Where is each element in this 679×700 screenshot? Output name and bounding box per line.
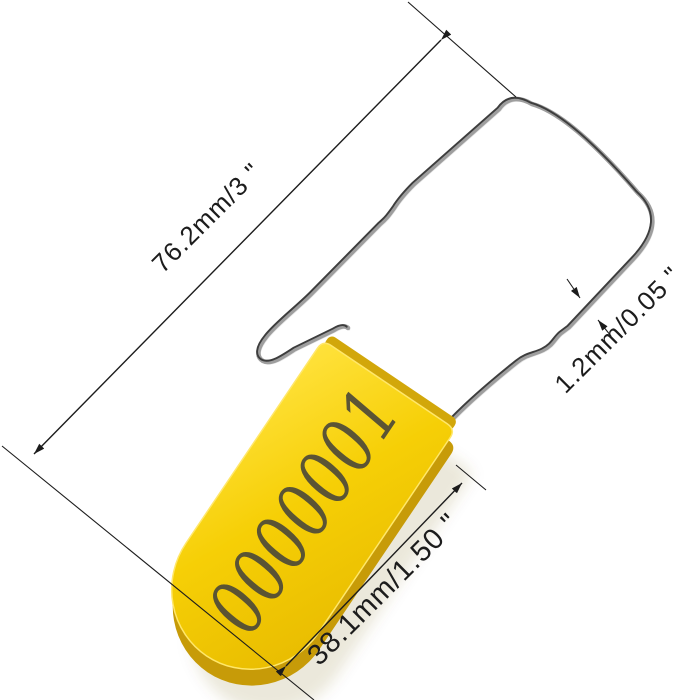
extension-line-top xyxy=(408,2,516,97)
wire-diameter-arrow-upper xyxy=(567,279,580,298)
overall-length-label: 76.2mm/3 " xyxy=(146,157,268,279)
security-seal-illustration: 0000001 76.2mm/3 " 38.1mm/1.50 " 1.2mm/0… xyxy=(0,0,679,700)
product-photo-canvas: 0000001 76.2mm/3 " 38.1mm/1.50 " 1.2mm/0… xyxy=(0,0,679,700)
